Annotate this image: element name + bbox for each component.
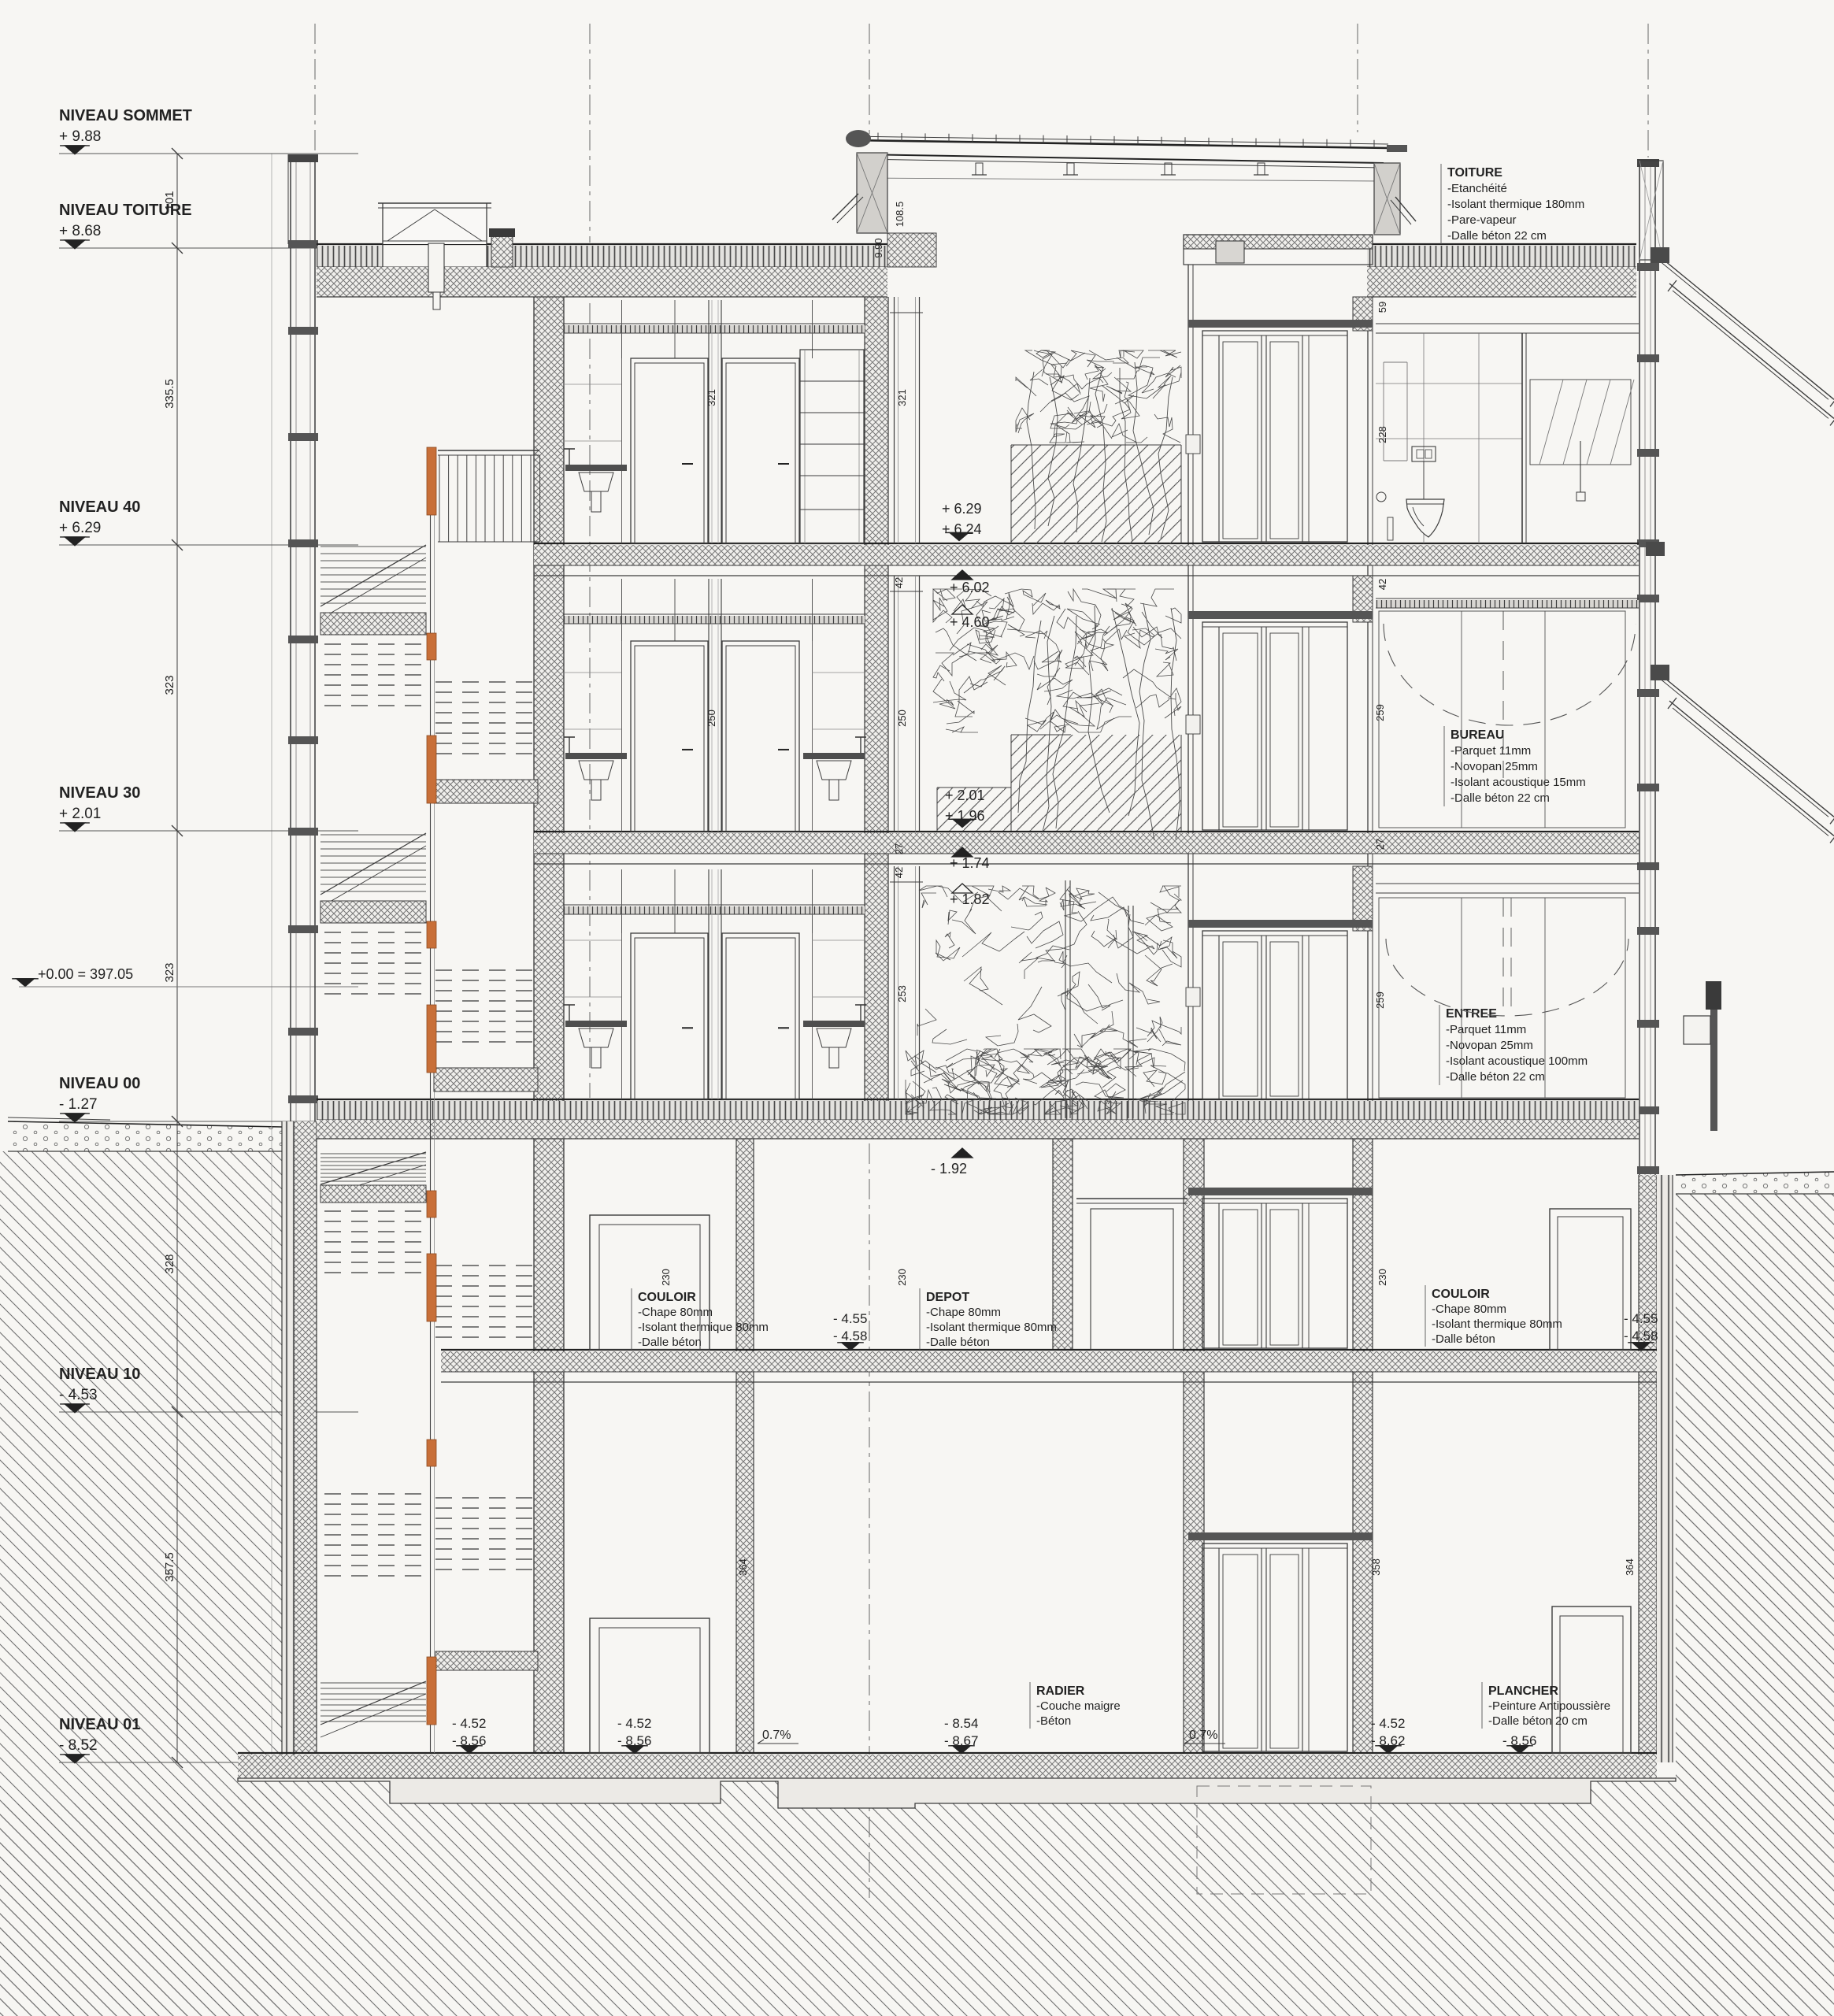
svg-text:- 4.58: - 4.58 <box>833 1329 867 1343</box>
svg-text:-Pare-vapeur: -Pare-vapeur <box>1447 213 1517 227</box>
svg-text:101: 101 <box>163 191 176 210</box>
svg-text:RADIER: RADIER <box>1036 1684 1085 1698</box>
svg-text:-Novopan 25mm: -Novopan 25mm <box>1451 760 1538 773</box>
svg-text:COULOIR: COULOIR <box>1432 1288 1490 1301</box>
svg-text:-Isolant thermique 80mm: -Isolant thermique 80mm <box>1432 1317 1562 1331</box>
svg-text:NIVEAU 10: NIVEAU 10 <box>59 1366 140 1383</box>
svg-text:- 8.54: - 8.54 <box>944 1716 978 1731</box>
svg-text:-Parquet 11mm: -Parquet 11mm <box>1446 1023 1526 1036</box>
svg-text:253: 253 <box>896 985 908 1002</box>
svg-text:- 4.52: - 4.52 <box>617 1716 651 1731</box>
svg-text:-Chape 80mm: -Chape 80mm <box>1432 1303 1506 1316</box>
svg-text:230: 230 <box>660 1269 672 1286</box>
svg-text:-Dalle béton: -Dalle béton <box>638 1336 702 1349</box>
svg-text:COULOIR: COULOIR <box>638 1291 696 1304</box>
svg-text:+ 6.29: + 6.29 <box>59 520 101 536</box>
svg-text:42: 42 <box>1376 579 1388 590</box>
svg-text:27: 27 <box>1374 839 1386 850</box>
svg-text:250: 250 <box>706 710 717 727</box>
svg-text:BUREAU: BUREAU <box>1451 728 1504 742</box>
svg-text:- 4.58: - 4.58 <box>1624 1329 1658 1343</box>
svg-text:364: 364 <box>1624 1558 1636 1576</box>
svg-text:321: 321 <box>896 389 908 406</box>
svg-text:- 4.53: - 4.53 <box>59 1387 98 1403</box>
svg-text:- 1.27: - 1.27 <box>59 1096 98 1113</box>
svg-text:27: 27 <box>893 843 905 854</box>
svg-text:230: 230 <box>896 1269 908 1286</box>
svg-text:DEPOT: DEPOT <box>926 1291 969 1304</box>
svg-text:-Dalle béton 22 cm: -Dalle béton 22 cm <box>1447 229 1547 243</box>
svg-text:-Peinture Antipoussière: -Peinture Antipoussière <box>1488 1699 1610 1713</box>
svg-text:+0.00 = 397.05: +0.00 = 397.05 <box>38 966 133 982</box>
svg-text:-Dalle béton 22 cm: -Dalle béton 22 cm <box>1451 791 1550 805</box>
svg-text:NIVEAU 00: NIVEAU 00 <box>59 1075 140 1092</box>
svg-text:259: 259 <box>1374 704 1386 721</box>
svg-text:-Isolant thermique 80mm: -Isolant thermique 80mm <box>926 1321 1057 1334</box>
svg-text:-Isolant acoustique 15mm: -Isolant acoustique 15mm <box>1451 776 1586 789</box>
svg-text:-Dalle béton: -Dalle béton <box>1432 1332 1495 1346</box>
svg-text:323: 323 <box>163 675 176 695</box>
svg-text:357.5: 357.5 <box>163 1552 176 1582</box>
svg-text:+ 2.01: + 2.01 <box>59 806 101 822</box>
svg-text:228: 228 <box>1376 426 1388 443</box>
svg-text:+ 6.29: + 6.29 <box>942 501 982 517</box>
svg-text:- 4.52: - 4.52 <box>452 1716 486 1731</box>
svg-text:-Parquet 11mm: -Parquet 11mm <box>1451 744 1531 758</box>
svg-text:- 8.52: - 8.52 <box>59 1737 98 1754</box>
svg-text:0.7%: 0.7% <box>762 1729 791 1742</box>
svg-text:328: 328 <box>163 1254 176 1273</box>
svg-text:358: 358 <box>1370 1558 1382 1576</box>
svg-text:PLANCHER: PLANCHER <box>1488 1684 1558 1698</box>
svg-text:NIVEAU 30: NIVEAU 30 <box>59 784 140 802</box>
svg-text:- 4.52: - 4.52 <box>1371 1716 1405 1731</box>
svg-text:-Chape 80mm: -Chape 80mm <box>926 1306 1001 1319</box>
svg-text:- 4.55: - 4.55 <box>1624 1311 1658 1326</box>
svg-text:323: 323 <box>163 962 176 982</box>
svg-text:+ 4.60: + 4.60 <box>950 614 990 630</box>
svg-text:-Dalle béton: -Dalle béton <box>926 1336 990 1349</box>
svg-text:9.90: 9.90 <box>873 238 884 258</box>
svg-text:+ 9.88: + 9.88 <box>59 128 101 145</box>
svg-text:-Etanchéité: -Etanchéité <box>1447 182 1507 195</box>
svg-text:-Dalle béton 20 cm: -Dalle béton 20 cm <box>1488 1714 1588 1728</box>
svg-text:-Isolant acoustique 100mm: -Isolant acoustique 100mm <box>1446 1054 1588 1068</box>
svg-text:TOITURE: TOITURE <box>1447 166 1502 180</box>
svg-text:-Isolant thermique 180mm: -Isolant thermique 180mm <box>1447 198 1584 211</box>
svg-text:230: 230 <box>1376 1269 1388 1286</box>
svg-text:-Couche maigre: -Couche maigre <box>1036 1699 1121 1713</box>
svg-text:-Dalle béton 22 cm: -Dalle béton 22 cm <box>1446 1070 1545 1084</box>
svg-text:321: 321 <box>706 389 717 406</box>
svg-text:42: 42 <box>893 867 905 878</box>
svg-text:364: 364 <box>737 1558 749 1576</box>
svg-text:335.5: 335.5 <box>163 379 176 409</box>
svg-text:+ 8.68: + 8.68 <box>59 223 101 239</box>
svg-text:59: 59 <box>1376 302 1388 313</box>
svg-text:108.5: 108.5 <box>894 202 906 228</box>
svg-text:NIVEAU 40: NIVEAU 40 <box>59 498 140 516</box>
svg-text:-Chape 80mm: -Chape 80mm <box>638 1306 713 1319</box>
svg-text:259: 259 <box>1374 991 1386 1009</box>
svg-text:+ 6.02: + 6.02 <box>950 580 990 595</box>
svg-text:-Isolant thermique 80mm: -Isolant thermique 80mm <box>638 1321 769 1334</box>
svg-text:+ 1.82: + 1.82 <box>950 891 990 907</box>
svg-text:- 1.92: - 1.92 <box>931 1161 967 1177</box>
svg-text:+ 2.01: + 2.01 <box>945 787 985 803</box>
svg-text:ENTREE: ENTREE <box>1446 1007 1497 1021</box>
svg-text:0.7%: 0.7% <box>1189 1729 1217 1742</box>
svg-text:250: 250 <box>896 710 908 727</box>
svg-text:42: 42 <box>893 577 905 588</box>
svg-text:NIVEAU SOMMET: NIVEAU SOMMET <box>59 107 192 124</box>
svg-text:-Béton: -Béton <box>1036 1714 1071 1728</box>
svg-text:-Novopan 25mm: -Novopan 25mm <box>1446 1039 1533 1052</box>
svg-text:NIVEAU 01: NIVEAU 01 <box>59 1716 140 1733</box>
svg-text:- 4.55: - 4.55 <box>833 1311 867 1326</box>
svg-text:+ 1.74: + 1.74 <box>950 855 990 871</box>
